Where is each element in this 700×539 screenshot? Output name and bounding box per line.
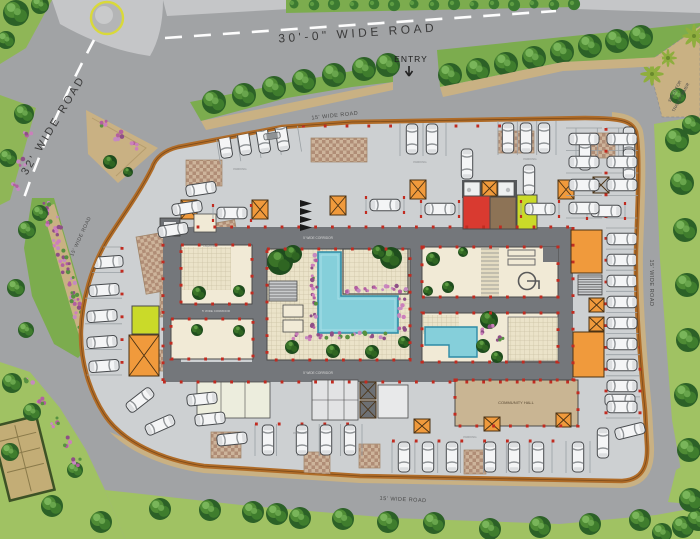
- svg-text:5' WIDE CORRIDOR: 5' WIDE CORRIDOR: [303, 236, 334, 240]
- svg-text:PARKING: PARKING: [523, 157, 537, 161]
- svg-text:PARKING: PARKING: [293, 431, 307, 435]
- svg-text:ENTRY: ENTRY: [394, 54, 428, 64]
- svg-text:PARKING: PARKING: [233, 167, 247, 171]
- svg-text:PARKING: PARKING: [463, 435, 477, 439]
- svg-text:5' WIDE CORRIDOR: 5' WIDE CORRIDOR: [303, 371, 334, 375]
- svg-text:PARKING: PARKING: [203, 244, 217, 248]
- svg-text:COMMUNITY HALL: COMMUNITY HALL: [498, 400, 534, 405]
- svg-text:5' WIDE CORRIDOR: 5' WIDE CORRIDOR: [202, 309, 231, 313]
- svg-text:15' WIDE ROAD: 15' WIDE ROAD: [648, 260, 654, 307]
- svg-text:PARKING: PARKING: [413, 160, 427, 164]
